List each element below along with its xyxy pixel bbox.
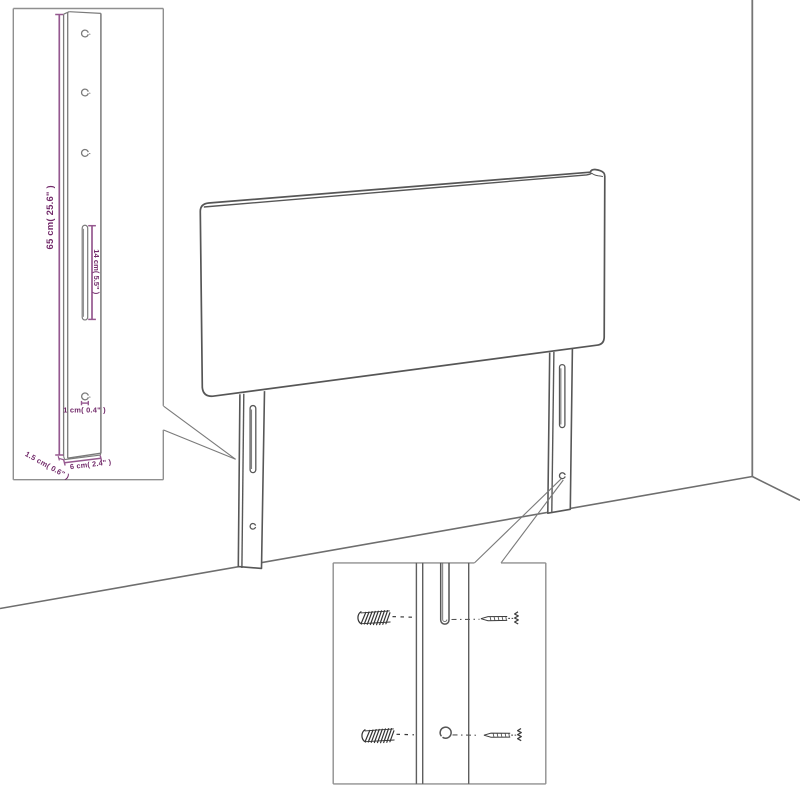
svg-text:1 cm( 0.4" ): 1 cm( 0.4" ) <box>63 405 106 414</box>
svg-text:65 cm( 25.6" ): 65 cm( 25.6" ) <box>45 185 56 249</box>
svg-text:14 cm( 5.5" ): 14 cm( 5.5" ) <box>92 249 101 294</box>
